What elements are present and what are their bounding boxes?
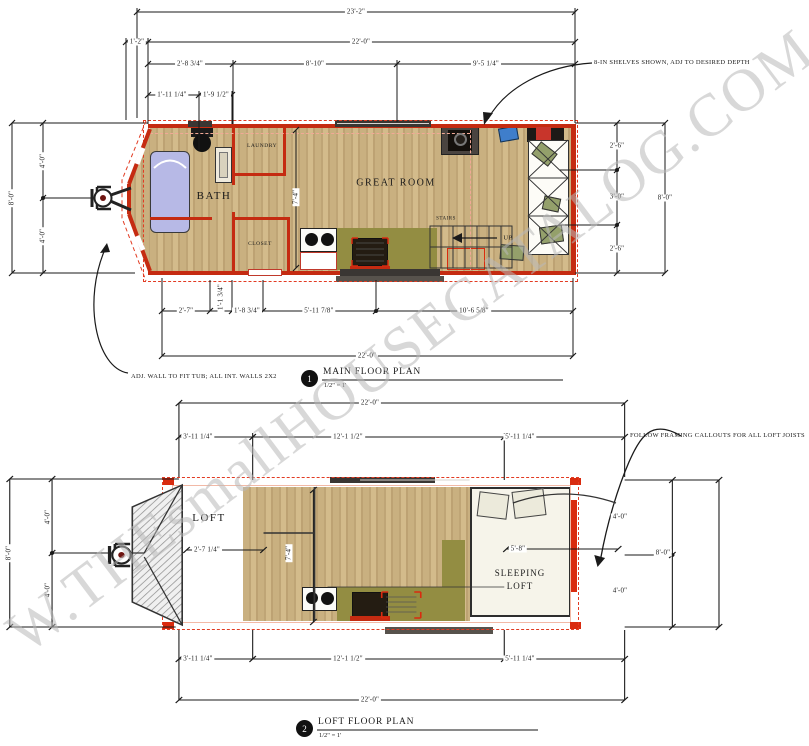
dimension-label: 3'-11 1/4" [181, 656, 214, 663]
room-label-closet: CLOSET [248, 241, 272, 247]
dimension-label: 1'-11 1/4" [155, 92, 188, 99]
dimension-label: 9'-5 1/4" [471, 61, 501, 68]
framing-annotation: FOLLOW FRAMING CALLOUTS FOR ALL LOFT JOI… [630, 433, 805, 440]
dimension-label: 5'-11 1/4" [503, 656, 536, 663]
dimension-label: 2'-7" [177, 308, 195, 315]
room-label-bath: BATH [197, 190, 232, 202]
dimension-label: 8'-0" [654, 550, 672, 557]
dimension-label: 1'-2" [128, 39, 146, 46]
dimension-label: 12'-1 1/2" [331, 656, 365, 663]
dimension-label: 1'-1 3/4" [218, 282, 225, 312]
dimension-label: 2'-6" [608, 246, 626, 253]
dimension-label: 5'-11 1/4" [503, 434, 536, 441]
dimension-label: 8'-0" [6, 544, 13, 562]
dimension-label: 4'-0" [40, 227, 47, 245]
dimension-label: 2'-7 1/4" [192, 547, 222, 554]
loft-plan-title: LOFT FLOOR PLAN [318, 718, 414, 728]
dimension-label: 4'-0" [40, 152, 47, 170]
dimension-label: 23'-2" [345, 9, 367, 16]
room-label-stairs: STAIRS [436, 217, 456, 222]
loft-plan-title-rule [317, 729, 538, 731]
room-label-laundry: LAUNDRY [247, 143, 277, 149]
dimension-label: 2'-8 3/4" [175, 61, 205, 68]
dimension-label: 4'-0" [45, 508, 52, 526]
room-label-sleeping-loft-1: SLEEPING [495, 568, 546, 578]
room-label-great-room: GREAT ROOM [356, 178, 436, 189]
dimension-label: 4'-0" [611, 588, 629, 595]
loft-plan-callout-number: 2 [296, 720, 313, 737]
floor-plan-sheet: 23'-2" 22'-0" 1'-2" 2'-8 3/4" 8'-10" 9'-… [0, 0, 809, 746]
loft-plan-scale: 1/2" = 1' [319, 733, 341, 740]
dimension-label: 8'-10" [304, 61, 326, 68]
dimension-label: 22'-0" [350, 39, 372, 46]
dimension-label: 22'-0" [359, 697, 381, 704]
dimension-label: 1'-8 3/4" [232, 308, 262, 315]
room-label-sleeping-loft-2: LOFT [507, 581, 534, 591]
dimension-label: 5'-8" [509, 546, 527, 553]
dimension-label: 7'-4" [286, 544, 293, 562]
tub-wall-annotation: ADJ. WALL TO FIT TUB; ALL INT. WALLS 2X2 [131, 374, 277, 381]
dimension-label: 1'-9 1/2" [201, 92, 231, 99]
dimension-label: 3'-11 1/4" [181, 434, 214, 441]
dimension-label: 4'-0" [611, 514, 629, 521]
dimension-label: 7'-4" [293, 188, 300, 206]
dimension-label: 5'-11 7/8" [302, 308, 335, 315]
dimension-label: 8'-0" [9, 189, 16, 207]
